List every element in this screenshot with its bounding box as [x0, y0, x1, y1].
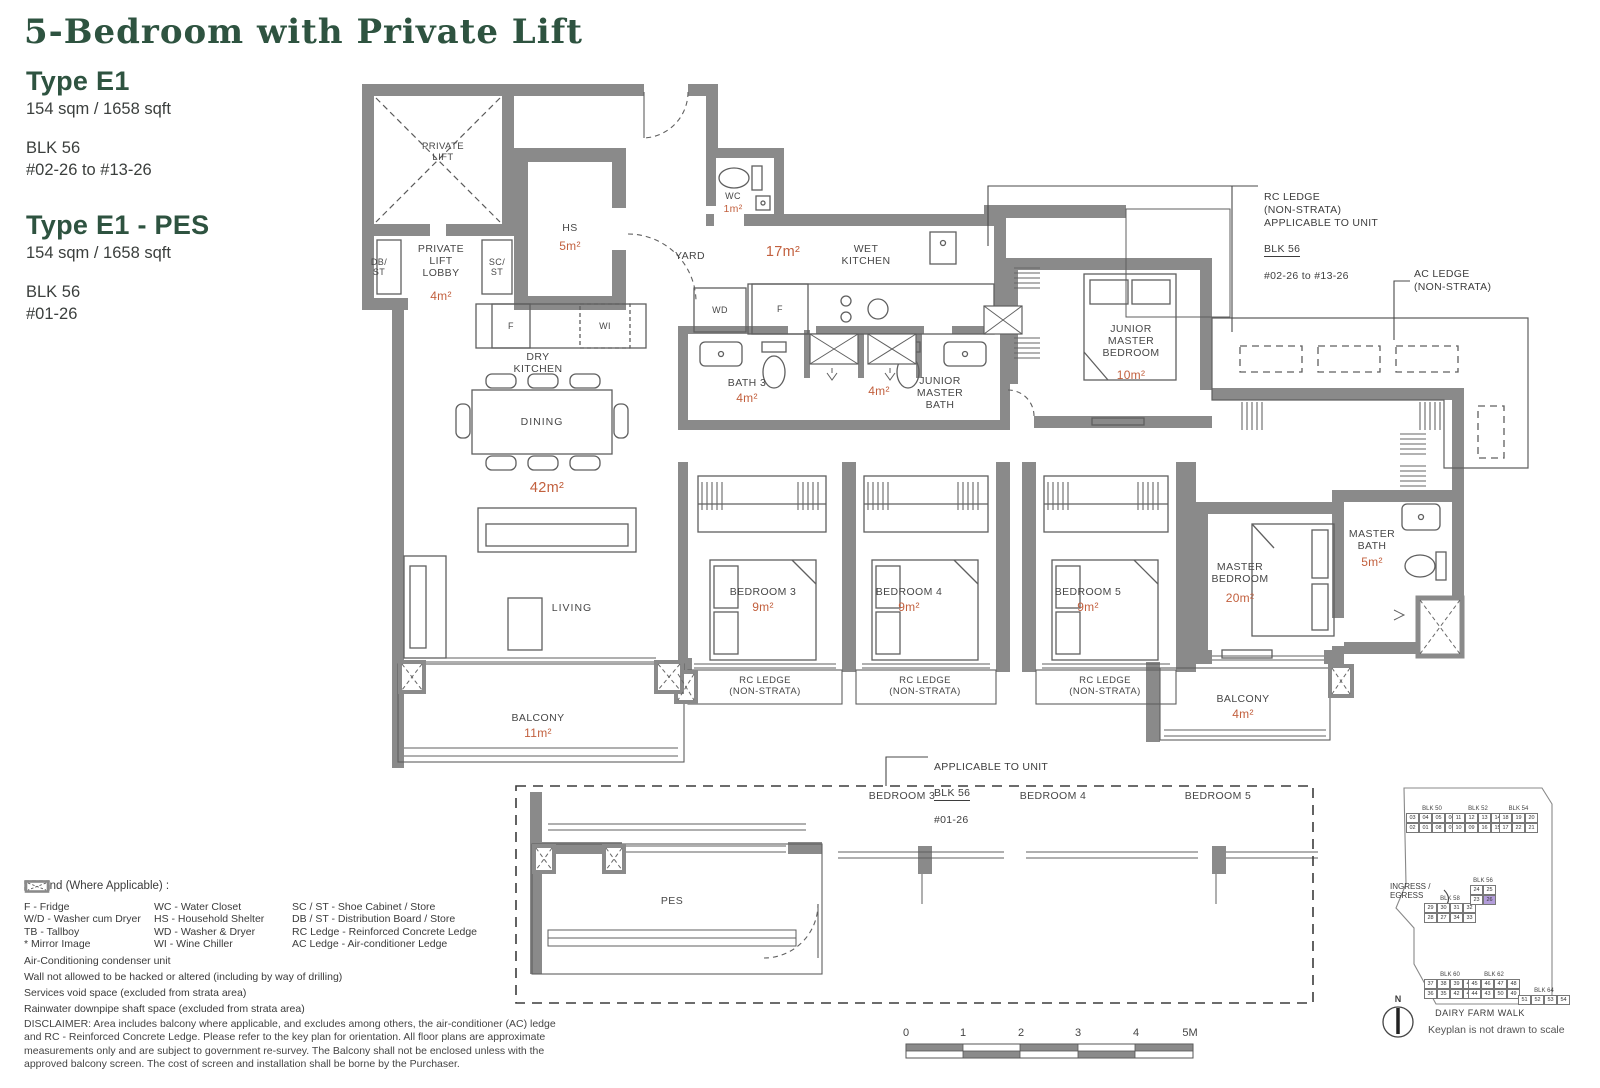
keyplan-unit: 38	[1437, 979, 1450, 989]
rainwater-downpipe-icon	[24, 880, 50, 893]
legend-symbol-label: Rainwater downpipe shaft space (excluded…	[24, 1003, 305, 1015]
label-junior-master-bedroom: JUNIOR MASTER BEDROOM	[1102, 323, 1159, 359]
pes-note-block: BLK 56	[934, 787, 970, 801]
legend: Legend (Where Applicable) : F - Fridge W…	[24, 880, 569, 1015]
rc-ledge-note: RC LEDGE (NON-STRATA) APPLICABLE TO UNIT…	[1264, 178, 1378, 283]
legend-column-3: SC / ST - Shoe Cabinet / Store DB / ST -…	[292, 901, 569, 951]
legend-abbreviations: F - Fridge W/D - Washer cum Dryer TB - T…	[24, 901, 569, 951]
keyplan-unit-row: 44435049	[1468, 989, 1520, 999]
area-bedroom4: 9m²	[898, 600, 920, 614]
keyplan-unit: 53	[1544, 995, 1557, 1005]
keyplan-unit: 52	[1531, 995, 1544, 1005]
pes-note-units: #01-26	[934, 814, 969, 826]
label-lift-lobby: PRIVATE LIFT LOBBY	[418, 243, 464, 279]
label-wine-chiller: WI	[599, 321, 611, 331]
keyplan-unit: 47	[1494, 979, 1507, 989]
keyplan-unit: 26	[1483, 895, 1496, 905]
keyplan-unit: 11	[1452, 813, 1465, 823]
legend-symbol-wall: Wall not allowed to be hacked or altered…	[24, 971, 569, 983]
keyplan-unit-row: 29303132	[1424, 903, 1476, 913]
label-yard: YARD	[675, 250, 705, 262]
keyplan-note: Keyplan is not drawn to scale	[1428, 1024, 1565, 1036]
keyplan-road-label: DAIRY FARM WALK	[1435, 1008, 1525, 1018]
legend-symbol-label: Wall not allowed to be hacked or altered…	[24, 971, 342, 983]
legend-column-2: WC - Water Closet HS - Household Shelter…	[154, 901, 290, 951]
keyplan-block-label: BLK 54	[1499, 806, 1538, 812]
keyplan-unit: 28	[1424, 913, 1437, 923]
keyplan-unit: 19	[1512, 813, 1525, 823]
keyplan-block-blk-58: BLK 582930313228273433	[1424, 896, 1476, 923]
keyplan-block-label: BLK 52	[1452, 806, 1504, 812]
area-kitchen: 17m²	[766, 244, 800, 260]
type-units: #02-26 to #13-26	[26, 161, 306, 180]
label-dining: DINING	[521, 416, 564, 428]
keyplan-unit: 17	[1499, 823, 1512, 833]
label-wc: WC	[725, 191, 741, 201]
keyplan-unit: 50	[1494, 989, 1507, 999]
type-size: 154 sqm / 1658 sqft	[26, 244, 306, 263]
legend-heading: Legend (Where Applicable) :	[24, 880, 569, 892]
keyplan-unit-row: 172221	[1499, 823, 1538, 833]
scale-tick: 1	[960, 1027, 966, 1039]
area-balcony-master: 4m²	[1232, 707, 1254, 721]
keyplan-unit: 51	[1518, 995, 1531, 1005]
keyplan-unit: 08	[1432, 823, 1445, 833]
label-balcony-master: BALCONY	[1217, 693, 1270, 705]
keyplan-unit: 12	[1465, 813, 1478, 823]
ac-ledge-note: AC LEDGE (NON-STRATA)	[1414, 268, 1491, 294]
keyplan-unit: 24	[1470, 885, 1483, 895]
label-master-bedroom: MASTER BEDROOM	[1211, 561, 1268, 585]
keyplan-unit-row: 181920	[1499, 813, 1538, 823]
area-master-bath: 5m²	[1361, 555, 1383, 569]
keyplan-unit: 03	[1406, 813, 1419, 823]
keyplan-unit: 01	[1419, 823, 1432, 833]
area-balcony-main: 11m²	[524, 726, 552, 740]
keyplan-unit: 42	[1450, 989, 1463, 999]
keyplan-unit: 45	[1468, 979, 1481, 989]
type-e1-info: Type E1 154 sqm / 1658 sqft BLK 56 #02-2…	[26, 66, 306, 180]
label-bedroom4: BEDROOM 4	[876, 586, 943, 598]
area-wc: 1m²	[724, 203, 743, 215]
type-block: BLK 56	[26, 283, 306, 302]
keyplan-block-blk-50: BLK 500304050602010807	[1406, 806, 1458, 833]
label-bath3: BATH 3	[728, 377, 766, 389]
legend-item: WC - Water Closet	[154, 901, 290, 913]
keyplan-unit: 43	[1481, 989, 1494, 999]
legend-item: SC / ST - Shoe Cabinet / Store	[292, 901, 569, 913]
rc-ledge-note-block: BLK 56	[1264, 243, 1300, 257]
label-sc-st: SC/ ST	[489, 257, 505, 277]
keyplan-unit-row: 10091615	[1452, 823, 1504, 833]
compass-north-label: N	[1395, 994, 1402, 1004]
scale-tick: 3	[1075, 1027, 1081, 1039]
area-junior-master-bedroom: 10m²	[1117, 368, 1146, 382]
legend-symbol-label: Air-Conditioning condenser unit	[24, 955, 171, 967]
label-db-st: DB/ ST	[371, 257, 387, 277]
label-pes: PES	[661, 895, 683, 907]
pes-note-text: APPLICABLE TO UNIT	[934, 761, 1048, 773]
legend-symbol-void: Services void space (excluded from strat…	[24, 987, 569, 999]
label-junior-master-bath: JUNIOR MASTER BATH	[917, 375, 963, 411]
keyplan-unit: 13	[1478, 813, 1491, 823]
keyplan-block-label: BLK 58	[1424, 896, 1476, 902]
keyplan-unit: 31	[1450, 903, 1463, 913]
type-size: 154 sqm / 1658 sqft	[26, 100, 306, 119]
keyplan-unit-row: 2425	[1470, 885, 1496, 895]
keyplan-block-label: BLK 50	[1406, 806, 1458, 812]
label-rc-ledge-1: RC LEDGE (NON-STRATA)	[729, 675, 800, 697]
label-wet-kitchen: WET KITCHEN	[842, 243, 891, 267]
label-rc-ledge-2: RC LEDGE (NON-STRATA)	[889, 675, 960, 697]
type-name: Type E1 - PES	[26, 210, 306, 241]
label-pes-bedroom5: BEDROOM 5	[1185, 790, 1252, 802]
label-rc-ledge-3: RC LEDGE (NON-STRATA)	[1069, 675, 1140, 697]
ac-condenser-units	[1240, 346, 1504, 458]
label-pes-bedroom3: BEDROOM 3	[869, 790, 936, 802]
keyplan-block-label: BLK 64	[1518, 988, 1570, 994]
keyplan-unit-row: 11121314	[1452, 813, 1504, 823]
area-lift-lobby: 4m²	[430, 289, 452, 303]
keyplan-unit: 18	[1499, 813, 1512, 823]
page-title: 5-Bedroom with Private Lift	[24, 12, 583, 52]
legend-item: * Mirror Image	[24, 938, 152, 950]
keyplan-unit-row: 2326	[1470, 895, 1496, 905]
keyplan-unit: 39	[1450, 979, 1463, 989]
label-wd: WD	[712, 305, 728, 315]
area-junior-master-bath: 4m²	[868, 384, 890, 398]
scale-tick: 5M	[1182, 1027, 1197, 1039]
type-units: #01-26	[26, 305, 306, 324]
legend-item: F - Fridge	[24, 901, 152, 913]
type-name: Type E1	[26, 66, 306, 97]
keyplan-unit-row: 45464748	[1468, 979, 1520, 989]
legend-symbol-label: Services void space (excluded from strat…	[24, 987, 246, 999]
keyplan-unit: 04	[1419, 813, 1432, 823]
label-balcony-main: BALCONY	[512, 712, 565, 724]
keyplan-block-blk-64: BLK 6451525354	[1518, 988, 1570, 1005]
label-living: LIVING	[552, 602, 592, 614]
keyplan-unit: 27	[1437, 913, 1450, 923]
label-fridge-dry: F	[508, 321, 514, 331]
rc-ledge-note-units: #02-26 to #13-26	[1264, 270, 1349, 282]
label-master-bath: MASTER BATH	[1349, 528, 1395, 552]
keyplan-unit-row: 51525354	[1518, 995, 1570, 1005]
pes-note: APPLICABLE TO UNIT BLK 56 #01-26	[934, 748, 1048, 827]
legend-item: W/D - Washer cum Dryer	[24, 913, 152, 925]
legend-item: WI - Wine Chiller	[154, 938, 290, 950]
type-block: BLK 56	[26, 139, 306, 158]
floorplan-page: 5-Bedroom with Private Lift Type E1 154 …	[0, 0, 1600, 1088]
keyplan-ingress-label: INGRESS / EGRESS	[1390, 882, 1430, 900]
rc-ledge-note-text: RC LEDGE (NON-STRATA) APPLICABLE TO UNIT	[1264, 191, 1378, 229]
keyplan-unit: 20	[1525, 813, 1538, 823]
label-private-lift: PRIVATE LIFT	[422, 141, 464, 163]
legend-item: RC Ledge - Reinforced Concrete Ledge	[292, 926, 569, 938]
keyplan-block-blk-62: BLK 624546474844435049	[1468, 972, 1520, 999]
area-bedroom3: 9m²	[752, 600, 774, 614]
legend-item: HS - Household Shelter	[154, 913, 290, 925]
pes-boundary	[516, 786, 1313, 1003]
keyplan-unit: 33	[1463, 913, 1476, 923]
keyplan-unit: 29	[1424, 903, 1437, 913]
keyplan-unit: 02	[1406, 823, 1419, 833]
label-fridge-wet: F	[777, 304, 783, 314]
scale-tick: 4	[1133, 1027, 1139, 1039]
area-master-bedroom: 20m²	[1226, 591, 1255, 605]
keyplan-unit: 37	[1424, 979, 1437, 989]
keyplan-block-blk-56: BLK 5624252326	[1470, 878, 1496, 905]
keyplan-unit-row: 28273433	[1424, 913, 1476, 923]
keyplan-unit: 46	[1481, 979, 1494, 989]
label-hs: HS	[562, 222, 577, 234]
windows	[426, 656, 1324, 858]
legend-item: TB - Tallboy	[24, 926, 152, 938]
scale-tick: 0	[903, 1027, 909, 1039]
keyplan-unit: 09	[1465, 823, 1478, 833]
keyplan-unit: 30	[1437, 903, 1450, 913]
keyplan-unit-row: 03040506	[1406, 813, 1458, 823]
keyplan-unit: 36	[1424, 989, 1437, 999]
scale-tick: 2	[1018, 1027, 1024, 1039]
keyplan-unit: 23	[1470, 895, 1483, 905]
keyplan-unit: 10	[1452, 823, 1465, 833]
keyplan-unit: 21	[1525, 823, 1538, 833]
keyplan-unit: 34	[1450, 913, 1463, 923]
label-bedroom5: BEDROOM 5	[1055, 586, 1122, 598]
legend-column-1: F - Fridge W/D - Washer cum Dryer TB - T…	[24, 901, 152, 951]
legend-item: AC Ledge - Air-conditioner Ledge	[292, 938, 569, 950]
keyplan-unit: 05	[1432, 813, 1445, 823]
area-living-dining: 42m²	[530, 480, 564, 496]
area-bedroom5: 9m²	[1077, 600, 1099, 614]
keyplan-block-blk-52: BLK 521112131410091615	[1452, 806, 1504, 833]
keyplan-unit: 22	[1512, 823, 1525, 833]
area-bath3: 4m²	[736, 391, 758, 405]
keyplan-unit: 54	[1557, 995, 1570, 1005]
disclaimer: DISCLAIMER: Area includes balcony where …	[24, 1018, 576, 1072]
keyplan-unit-row: 02010807	[1406, 823, 1458, 833]
legend-item: WD - Washer & Dryer	[154, 926, 290, 938]
area-hs: 5m²	[559, 239, 581, 253]
keyplan-unit: 25	[1483, 885, 1496, 895]
keyplan-unit: 35	[1437, 989, 1450, 999]
keyplan-unit: 16	[1478, 823, 1491, 833]
legend-item: DB / ST - Distribution Board / Store	[292, 913, 569, 925]
legend-symbol-rainwater: Rainwater downpipe shaft space (excluded…	[24, 1003, 569, 1015]
keyplan-block-label: BLK 62	[1468, 972, 1520, 978]
keyplan-block-label: BLK 56	[1470, 878, 1496, 884]
label-bedroom3: BEDROOM 3	[730, 586, 797, 598]
legend-symbol-ac: Air-Conditioning condenser unit	[24, 955, 569, 967]
type-e1-pes-info: Type E1 - PES 154 sqm / 1658 sqft BLK 56…	[26, 210, 306, 324]
label-dry-kitchen: DRY KITCHEN	[514, 351, 563, 375]
keyplan-unit: 44	[1468, 989, 1481, 999]
scale-bar	[906, 1044, 1193, 1058]
keyplan-block-blk-54: BLK 54181920172221	[1499, 806, 1538, 833]
